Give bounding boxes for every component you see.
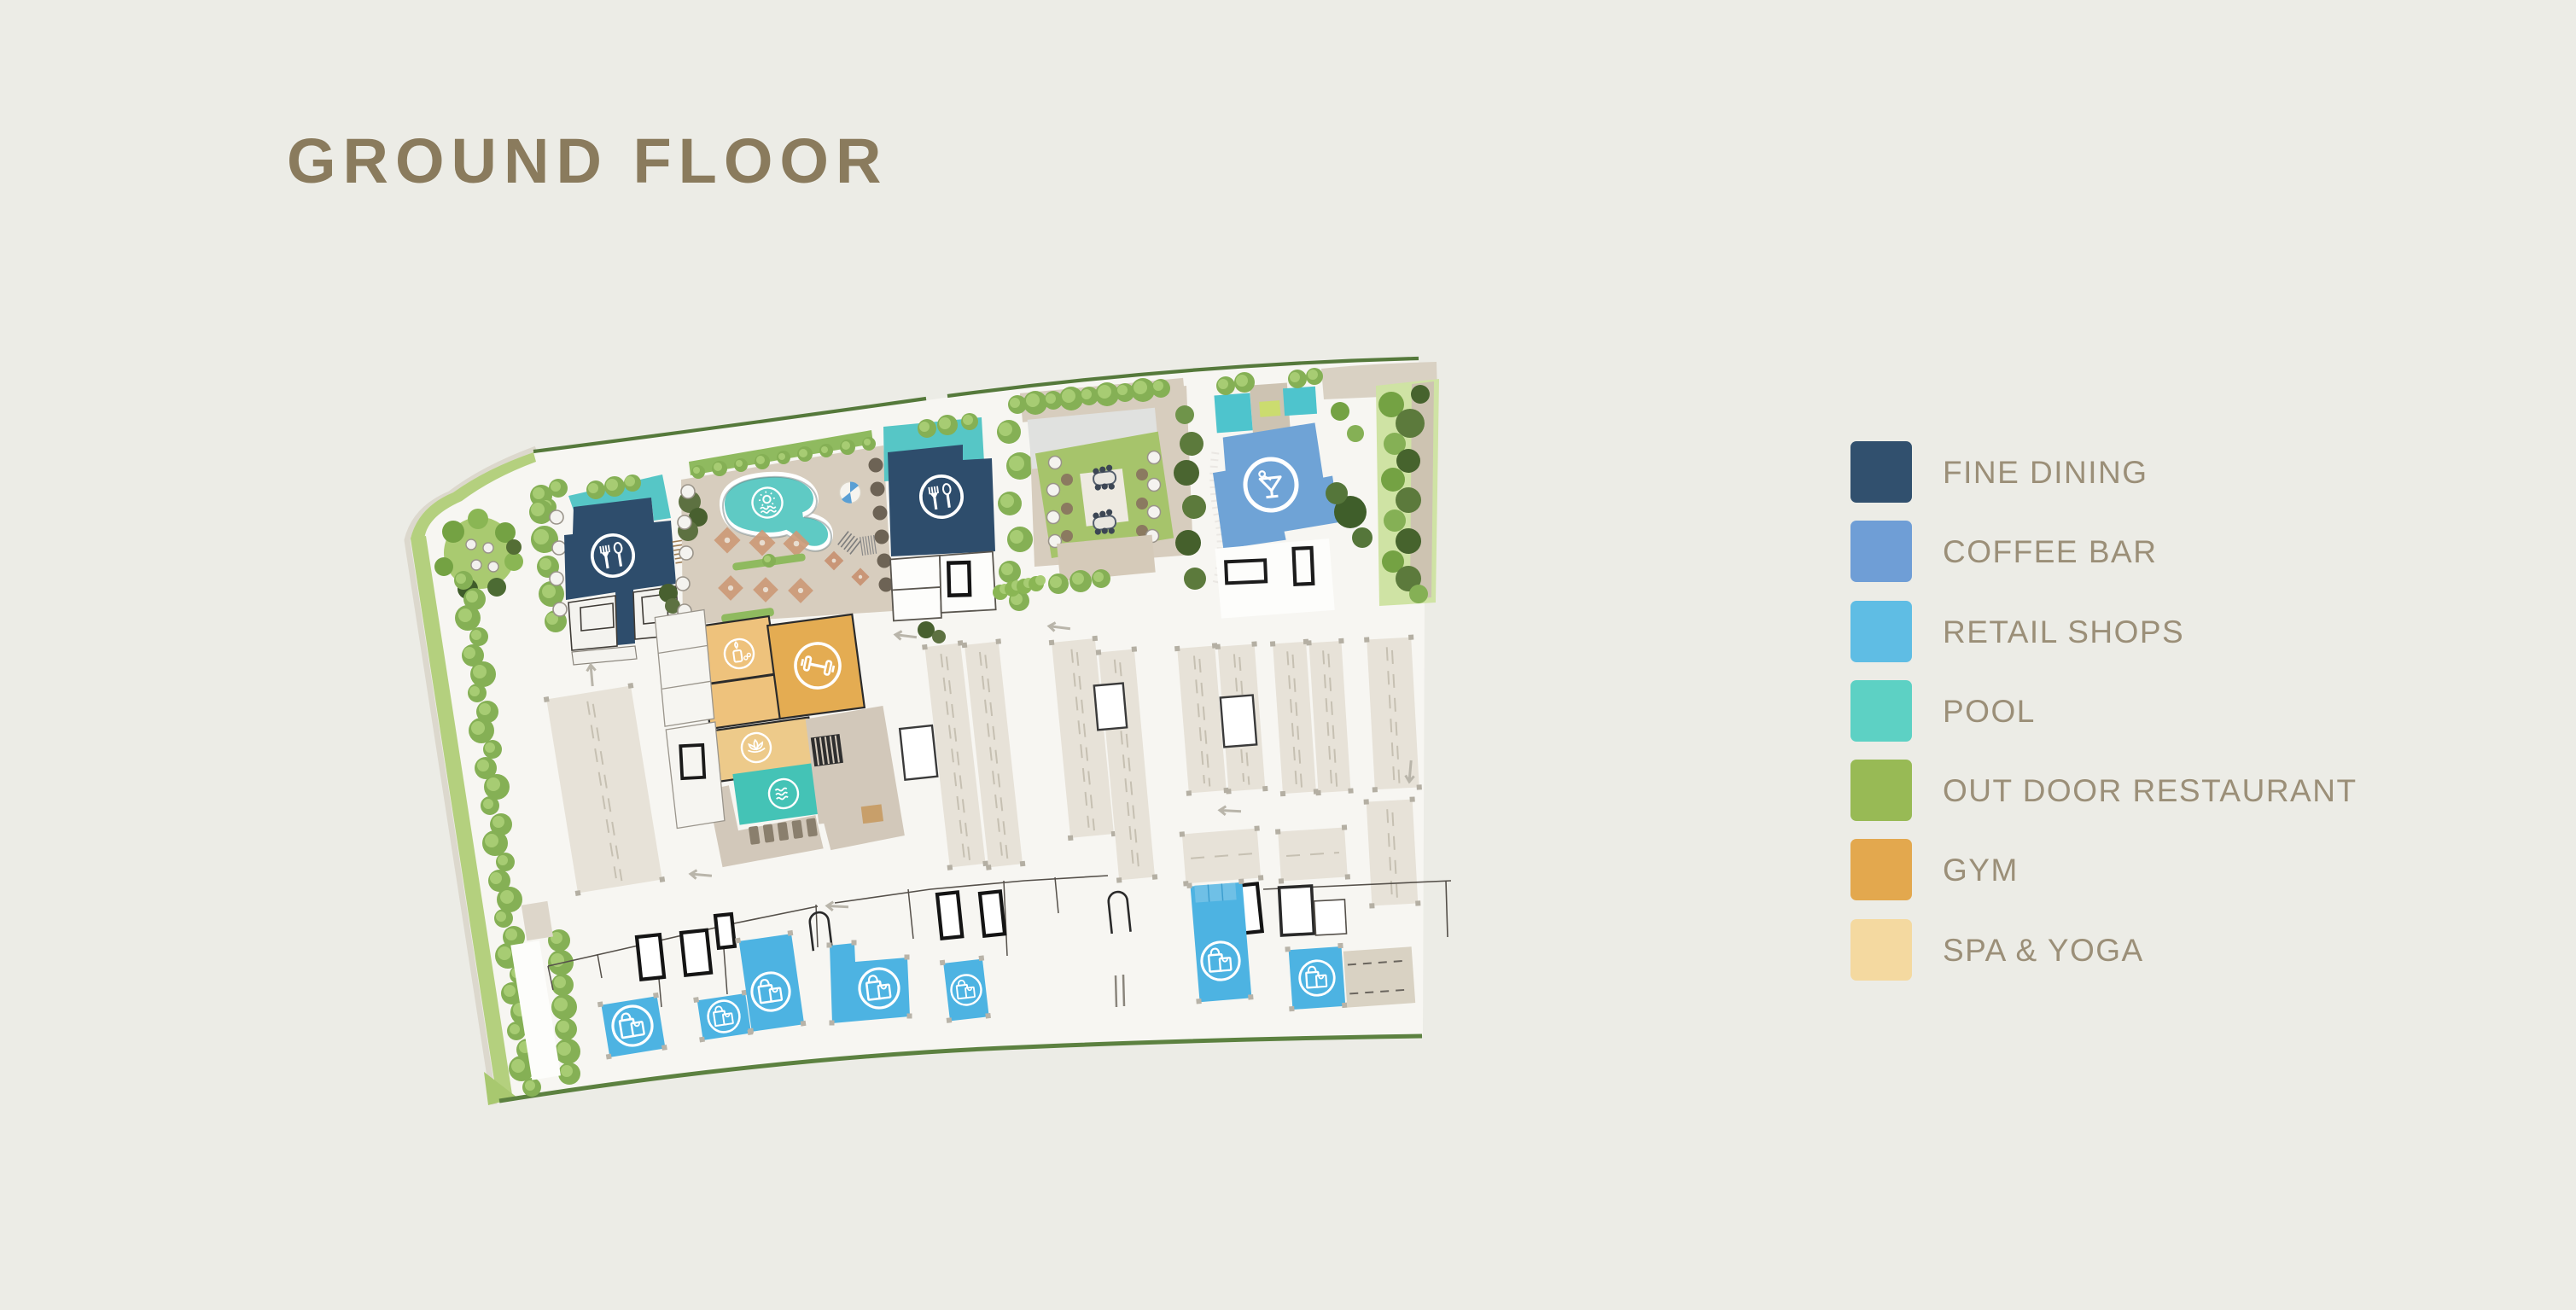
svg-text:COFFEE BAR: COFFEE BAR [1943, 534, 2157, 569]
svg-text:GYM: GYM [1943, 853, 2019, 888]
svg-text:SPA & YOGA: SPA & YOGA [1943, 933, 2144, 968]
svg-text:POOL: POOL [1943, 694, 2036, 729]
svg-text:GROUND FLOOR: GROUND FLOOR [287, 125, 888, 196]
svg-text:FINE DINING: FINE DINING [1943, 455, 2148, 490]
svg-text:RETAIL SHOPS: RETAIL SHOPS [1943, 614, 2184, 649]
svg-text:OUT DOOR RESTAURANT: OUT DOOR RESTAURANT [1943, 773, 2357, 808]
